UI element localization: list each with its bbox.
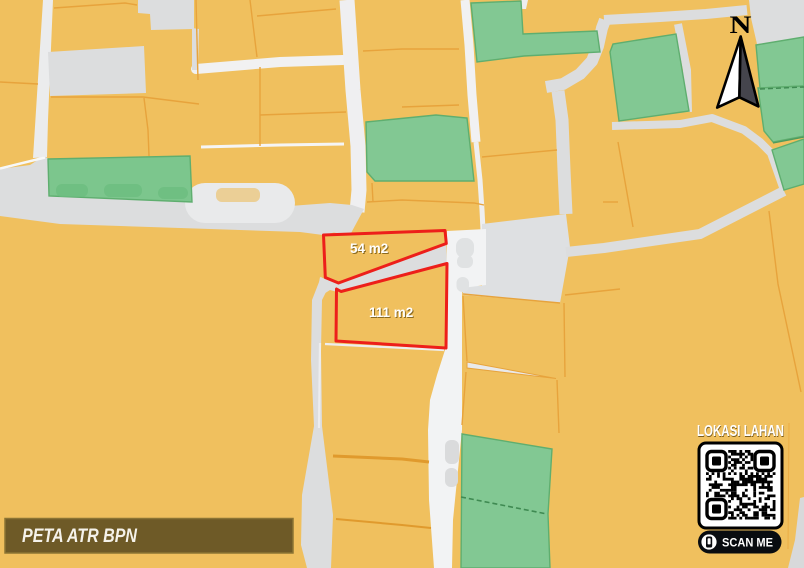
svg-text:PETA ATR BPN: PETA ATR BPN [22,526,138,547]
svg-text:111 m2: 111 m2 [369,305,413,320]
svg-text:SCAN ME: SCAN ME [722,538,773,550]
svg-text:N: N [730,12,752,39]
svg-text:LOKASI LAHAN: LOKASI LAHAN [697,423,784,440]
svg-text:54 m2: 54 m2 [350,241,388,256]
